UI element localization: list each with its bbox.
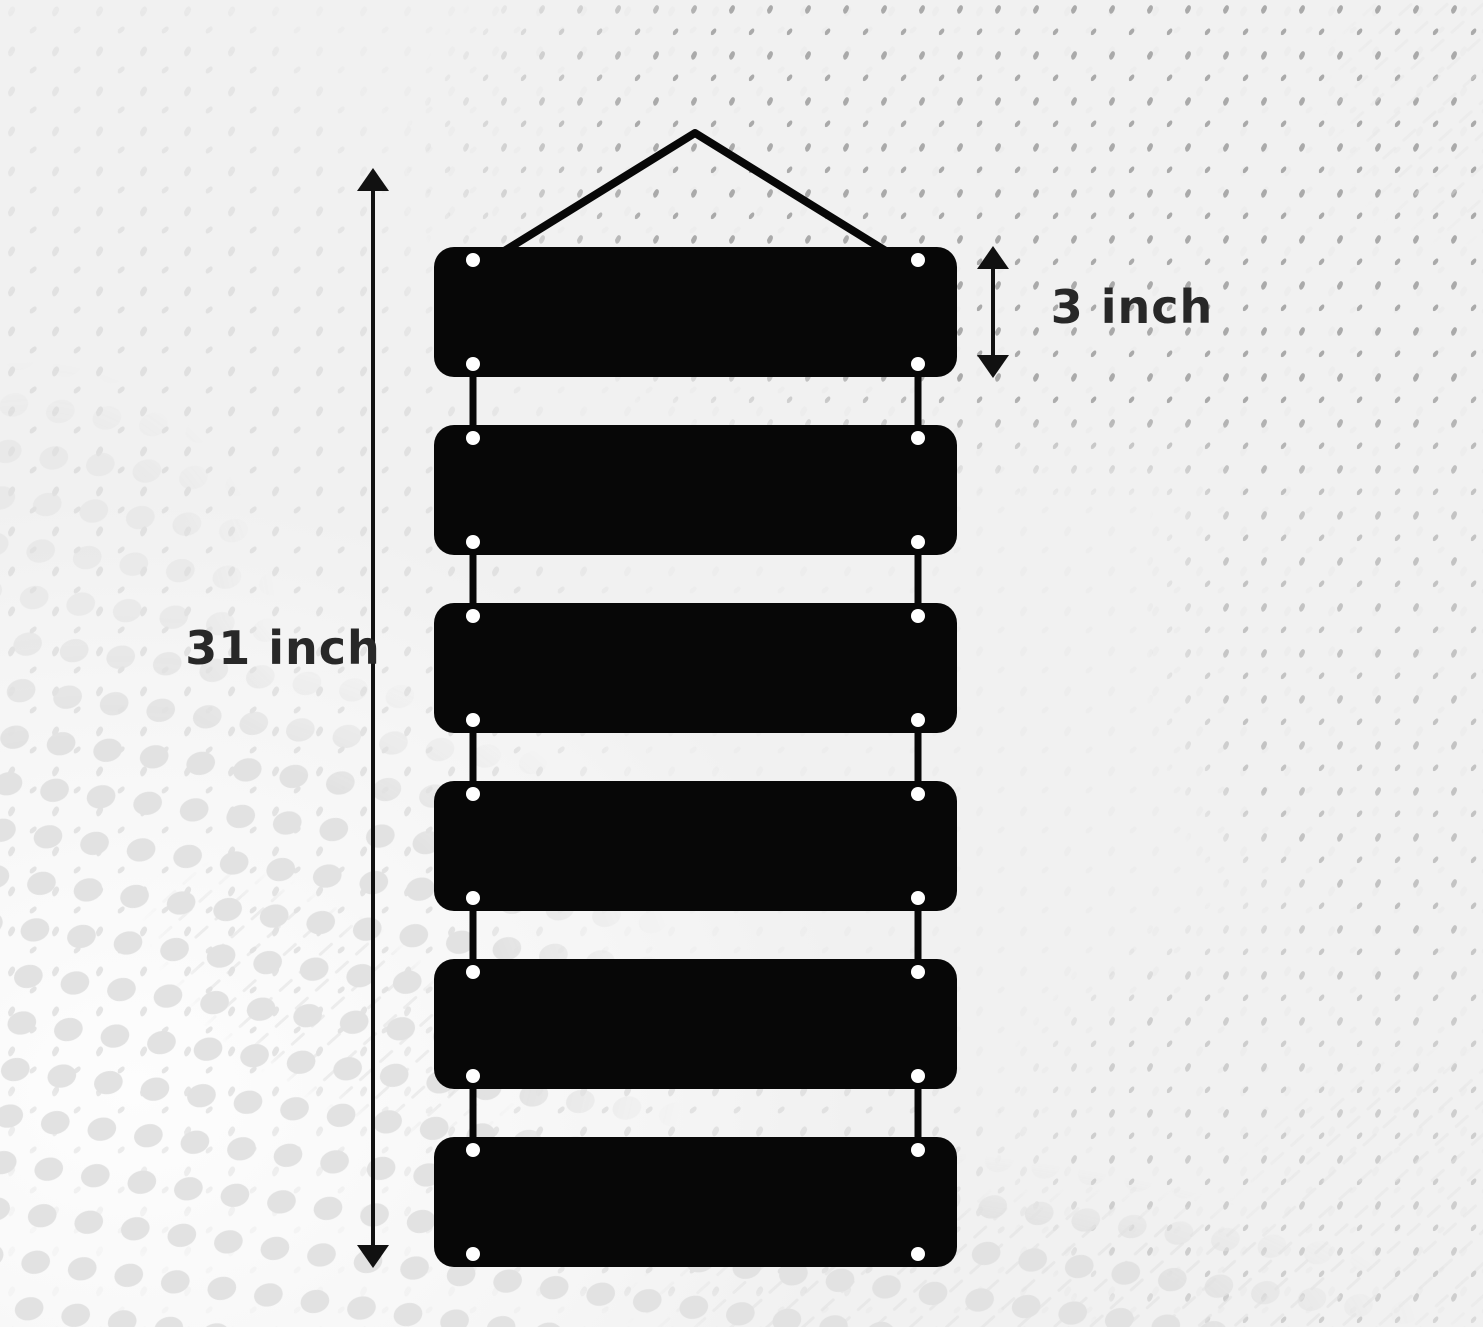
slat-hole (466, 713, 480, 727)
slat-hole (911, 431, 925, 445)
total-height-arrow (357, 168, 389, 1268)
arrow-up-icon (357, 168, 389, 191)
product-dimension-diagram: 31 inch 3 inch (0, 0, 1483, 1327)
slat-hole (911, 787, 925, 801)
slat-height-label: 3 inch (1022, 281, 1242, 333)
sign-slat (434, 247, 957, 377)
slat-hole (911, 253, 925, 267)
slat-hole (466, 1247, 480, 1261)
slat-hole (466, 891, 480, 905)
slat-hole (466, 357, 480, 371)
slat-hole (911, 965, 925, 979)
slat-hole (466, 965, 480, 979)
arrow-up-icon (977, 246, 1009, 269)
hanging-string (501, 133, 889, 253)
sign-slat (434, 959, 957, 1089)
slat-hole (466, 787, 480, 801)
slat-hole (911, 357, 925, 371)
sign-slat (434, 603, 957, 733)
slat-hole (911, 713, 925, 727)
sign-slat (434, 425, 957, 555)
slat-hole (911, 891, 925, 905)
slat-hole (466, 1143, 480, 1157)
sign-slat (434, 1137, 957, 1267)
slat-hole (466, 253, 480, 267)
arrow-down-icon (357, 1245, 389, 1268)
slat-hole (911, 1069, 925, 1083)
slat-hole (911, 1143, 925, 1157)
slat-hole (911, 609, 925, 623)
slat-hole (911, 1247, 925, 1261)
slat-hole (466, 609, 480, 623)
slat-hole (466, 535, 480, 549)
total-height-label: 31 inch (163, 622, 403, 674)
sign-slats (434, 247, 957, 1267)
slat-hole (466, 1069, 480, 1083)
slat-holes (466, 253, 925, 1261)
sign-slat (434, 781, 957, 911)
slat-hole (911, 535, 925, 549)
slat-height-arrow (977, 246, 1009, 378)
slat-hole (466, 431, 480, 445)
arrow-down-icon (977, 355, 1009, 378)
